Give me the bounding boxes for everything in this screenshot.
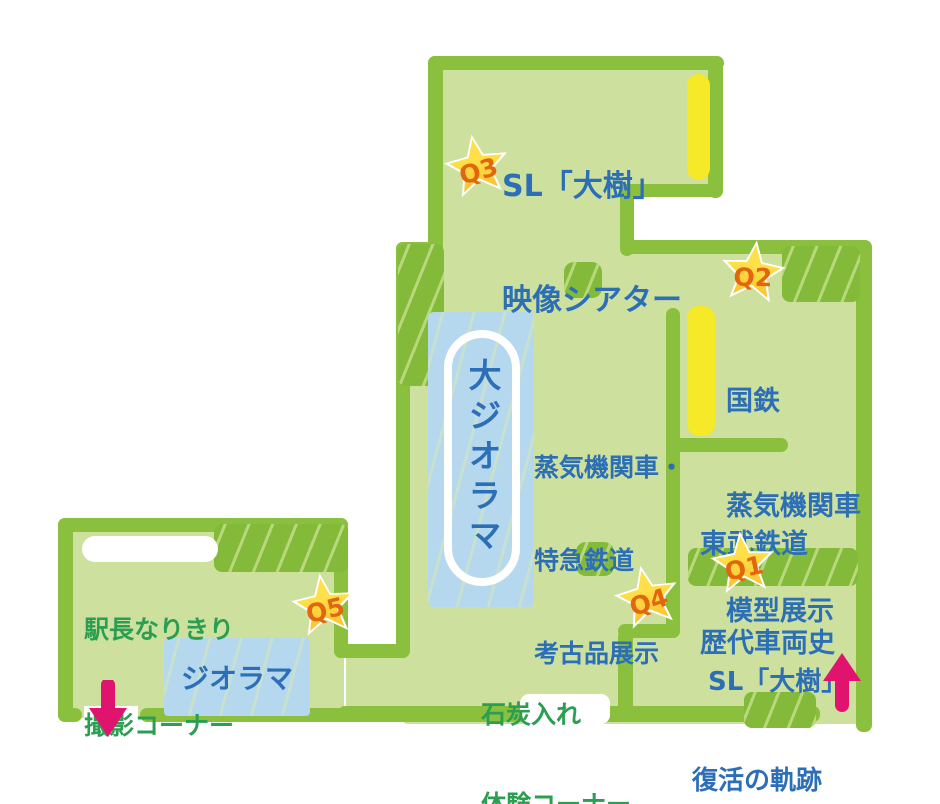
theater-label: SL「大樹」 映像シアター [502,92,682,396]
quiz-badge-label: Q1 [705,525,781,601]
arrow-down-icon [86,680,130,740]
quiz-star-q4: Q4 [609,559,685,635]
label-line: 国鉄 [726,384,861,419]
quiz-star-q2: Q2 [717,236,788,307]
museum-floor-map: 大ジオラマ ジオラマ SL「大樹」 映像シアター 国鉄 蒸気機関車 模型展示 東… [0,0,940,804]
wall-segment [708,58,723,198]
label-line: SL「大樹」 [502,168,682,206]
quiz-star-q3: Q3 [440,129,514,203]
coal-experience-label: 石炭入れ 体験コーナー [481,640,631,804]
highlight-bar [687,306,715,436]
highlight-bar [687,74,710,180]
quiz-star-q5: Q5 [288,569,360,641]
wall-segment [58,708,82,722]
entrance-label: 入口 [824,714,930,804]
label-line: 映像シアター [502,282,682,320]
exit-label: 出口 [72,736,138,804]
label-line: 駅長なりきり [84,614,234,646]
quiz-badge-label: Q5 [285,566,363,644]
label-line: 蒸気機関車・ [534,452,684,483]
label-line: 体験コーナー [481,790,631,804]
quiz-badge-label: Q2 [720,239,785,304]
wall-segment [334,644,410,658]
arrow-up-icon [820,650,864,712]
wall-segment [58,518,73,722]
large-diorama-label: 大ジオラマ [458,358,506,558]
wall-segment [428,56,724,70]
hatched-area [214,524,348,572]
hatched-area [782,246,860,302]
label-line: 石炭入れ [481,700,631,730]
quiz-star-q1: Q1 [708,528,778,598]
